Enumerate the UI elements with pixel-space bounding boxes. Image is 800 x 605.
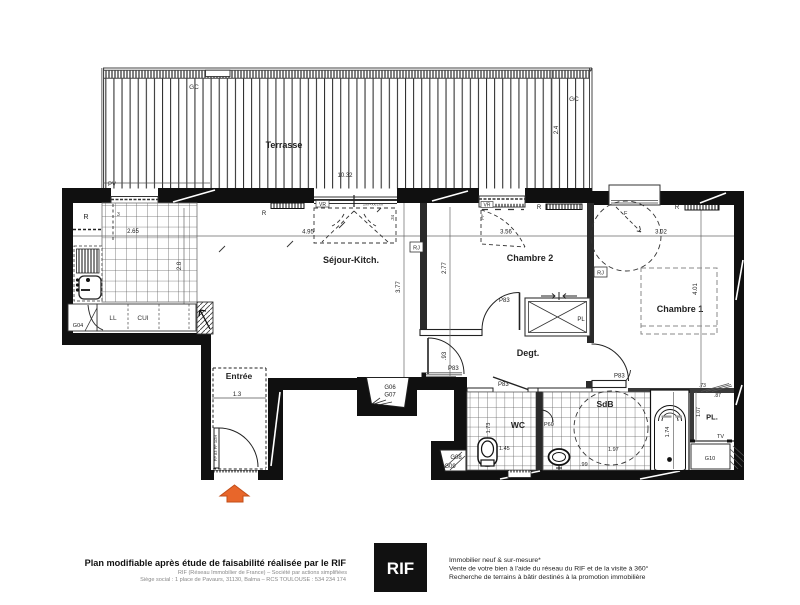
svg-text:Siège social : 1 place de Pava: Siège social : 1 place de Pavaurs, 31130… [140, 577, 346, 583]
svg-text:P83: P83 [499, 298, 510, 304]
svg-text:3.56: 3.56 [500, 230, 512, 236]
svg-text:WC: WC [511, 420, 525, 430]
svg-text:4.95: 4.95 [302, 230, 314, 236]
svg-text:2.4: 2.4 [554, 125, 560, 134]
svg-text:1.07: 1.07 [696, 407, 702, 417]
svg-text:3.02: 3.02 [655, 230, 667, 236]
svg-text:G08: G08 [450, 455, 462, 461]
svg-text:Vente de votre bien à l'aide d: Vente de votre bien à l'aide du réseau d… [449, 565, 649, 573]
svg-text:VR: VR [319, 202, 326, 208]
svg-text:2.65: 2.65 [127, 229, 139, 235]
svg-text:3.77: 3.77 [396, 281, 402, 293]
svg-text:TV: TV [717, 434, 724, 440]
svg-text:G09: G09 [444, 464, 456, 470]
svg-text:.93: .93 [442, 351, 448, 360]
svg-text:Chambre 2: Chambre 2 [507, 253, 554, 263]
svg-text:2xx+xx/2xh: 2xx+xx/2xh [363, 202, 383, 207]
svg-text:.87: .87 [714, 393, 721, 399]
svg-text:Chambre 1: Chambre 1 [657, 304, 704, 314]
svg-text:1.74: 1.74 [665, 427, 671, 438]
svg-text:PL.: PL. [706, 413, 718, 422]
svg-text:4.01: 4.01 [693, 283, 699, 295]
svg-text:VR: VR [484, 203, 491, 209]
svg-text:RIF (Réseau Immobilier de Fran: RIF (Réseau Immobilier de France) – Soci… [178, 570, 347, 576]
svg-text:P60: P60 [544, 422, 554, 428]
svg-text:R: R [537, 205, 542, 211]
svg-text:Degt.: Degt. [517, 348, 540, 358]
svg-text:PF: PF [480, 214, 485, 220]
svg-text:1.73: 1.73 [486, 423, 492, 434]
svg-text:Recherche de terrains à bâtir: Recherche de terrains à bâtir destinés à… [449, 574, 646, 581]
svg-text:PP 83 PF 1/2H: PP 83 PF 1/2H [213, 435, 218, 462]
svg-text:PL: PL [577, 317, 585, 323]
svg-text:3: 3 [117, 212, 120, 218]
svg-text:2.8: 2.8 [177, 261, 183, 270]
svg-text:SdB: SdB [597, 399, 614, 409]
svg-text:G07: G07 [384, 393, 396, 399]
svg-text:Entrée: Entrée [226, 371, 253, 381]
svg-text:.73: .73 [699, 383, 706, 389]
svg-text:1.97: 1.97 [608, 447, 619, 453]
svg-text:Plan modifiable après étude de: Plan modifiable après étude de faisabili… [85, 558, 347, 568]
svg-text:G06: G06 [384, 385, 396, 391]
svg-text:R: R [262, 211, 267, 217]
svg-text:.34: .34 [390, 214, 395, 221]
svg-text:1.3: 1.3 [233, 392, 242, 398]
svg-text:10.32: 10.32 [337, 173, 353, 179]
svg-text:GC: GC [569, 96, 579, 103]
svg-text:P83: P83 [614, 374, 625, 380]
svg-text:1.45: 1.45 [499, 446, 510, 452]
svg-text:F: F [624, 211, 628, 217]
svg-text:RJ: RJ [413, 246, 420, 252]
svg-text:CUI: CUI [137, 315, 148, 322]
svg-text:R: R [675, 205, 680, 211]
svg-text:G10: G10 [705, 456, 715, 462]
svg-text:RJ: RJ [597, 271, 604, 277]
svg-text:GC: GC [189, 84, 199, 91]
svg-text:LL: LL [109, 315, 117, 322]
svg-text:P83: P83 [498, 382, 509, 388]
svg-text:Terrasse: Terrasse [266, 140, 303, 150]
svg-text:Immobilier neuf & sur-mesure*: Immobilier neuf & sur-mesure* [449, 557, 541, 564]
svg-text:RIF: RIF [387, 559, 414, 578]
svg-text:PV: PV [108, 182, 116, 188]
svg-text:.99: .99 [580, 462, 588, 468]
svg-text:P83: P83 [448, 366, 459, 372]
svg-text:2.77: 2.77 [442, 262, 448, 274]
svg-text:Séjour-Kitch.: Séjour-Kitch. [323, 255, 379, 265]
svg-text:G04: G04 [73, 323, 83, 329]
svg-text:R: R [83, 214, 88, 221]
